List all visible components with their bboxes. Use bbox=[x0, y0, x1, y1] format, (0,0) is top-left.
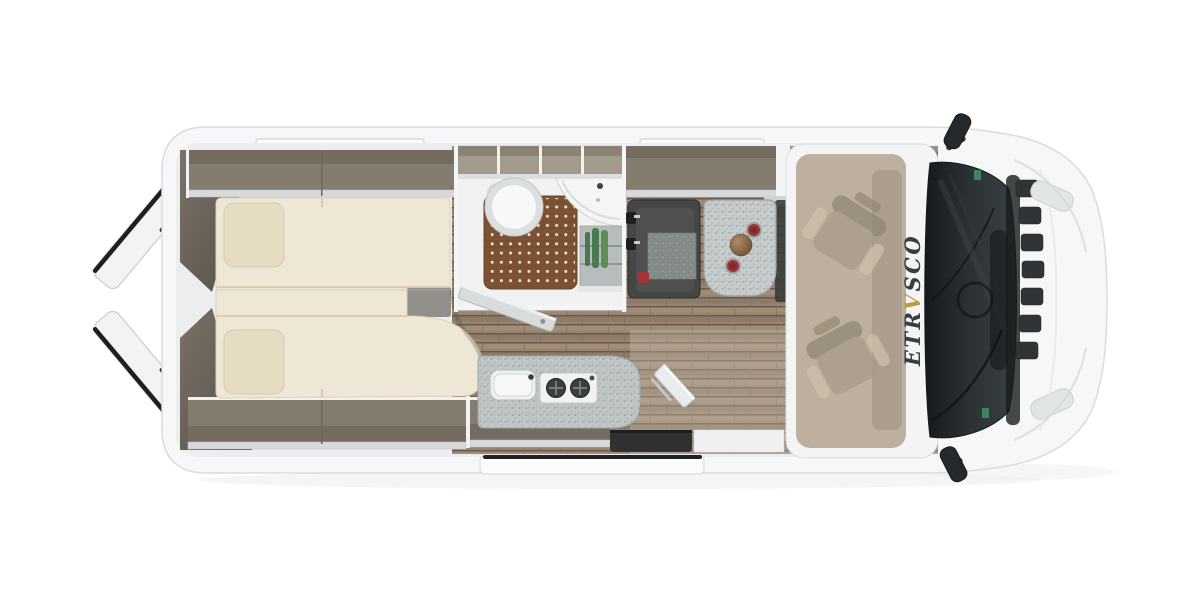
under-bed-shelf-shade bbox=[188, 426, 466, 444]
floorplan-svg: ETRVSCO bbox=[0, 0, 1200, 600]
toilet bbox=[485, 178, 543, 236]
entry-sill bbox=[694, 430, 784, 452]
shelf-front-lip bbox=[470, 440, 610, 447]
grille-slat bbox=[1021, 234, 1043, 251]
bed-recess-shadow bbox=[407, 286, 451, 317]
faucet bbox=[597, 183, 603, 189]
bathroom bbox=[454, 144, 626, 332]
twin-beds bbox=[216, 198, 484, 398]
bathroom-shelf bbox=[578, 226, 626, 297]
grille-slat bbox=[1019, 315, 1041, 332]
entry-edge bbox=[610, 430, 692, 433]
locker-divider bbox=[497, 146, 500, 176]
grille-slat bbox=[1022, 261, 1044, 278]
windshield-sticker bbox=[982, 408, 989, 418]
grille-slat bbox=[1016, 342, 1038, 359]
brand-logo-part: ETR bbox=[900, 310, 925, 367]
grille-slat bbox=[1021, 288, 1043, 305]
locker-divider bbox=[539, 146, 542, 176]
shelf-divider bbox=[466, 396, 470, 448]
grille-slat bbox=[1019, 207, 1041, 224]
bathroom-wall-left bbox=[454, 144, 458, 312]
buckle-pin bbox=[634, 241, 640, 244]
buckle-pin bbox=[634, 215, 640, 218]
bathroom-wall-right bbox=[622, 144, 626, 312]
cabinet-front-lip bbox=[626, 190, 778, 197]
shelf-front-lip bbox=[188, 190, 460, 197]
pillow-top-bed bbox=[224, 203, 284, 267]
kitchen-sink-basin bbox=[494, 374, 532, 396]
campervan-floorplan-scene: ETRVSCO bbox=[0, 0, 1200, 600]
shelf-seam bbox=[321, 150, 323, 196]
entry-floor-mat bbox=[610, 432, 692, 452]
brand-logo-part: SCO bbox=[900, 234, 925, 292]
shelf-seam bbox=[321, 400, 323, 444]
gas-hob bbox=[540, 373, 597, 403]
dinette-overhead-cabinet bbox=[626, 144, 790, 206]
toilet-bowl bbox=[492, 185, 536, 229]
red-cup-inner bbox=[730, 263, 736, 269]
brand-logo: ETRVSCO bbox=[900, 234, 925, 367]
cowl bbox=[1006, 175, 1020, 425]
shelf-tab bbox=[607, 292, 615, 297]
red-cup-inner bbox=[751, 227, 757, 233]
bronze-bowl bbox=[730, 234, 752, 256]
green-bottle bbox=[601, 230, 608, 268]
drain bbox=[596, 198, 600, 202]
windshield-sticker bbox=[974, 170, 981, 180]
locker-divider bbox=[581, 146, 584, 176]
kitchen-faucet bbox=[528, 374, 534, 380]
sliding-door-step bbox=[480, 455, 704, 474]
dashboard-shadow bbox=[990, 230, 1008, 370]
shelf-lip bbox=[578, 286, 626, 292]
step-edge bbox=[483, 455, 702, 459]
rear-overhead-shelf bbox=[186, 148, 460, 198]
dinette-table bbox=[704, 200, 776, 296]
shelf-shade bbox=[188, 150, 460, 164]
red-accent bbox=[638, 272, 649, 283]
bench-cushion-speckle bbox=[648, 233, 696, 279]
brand-logo-accent: V bbox=[900, 291, 925, 310]
hob-knob bbox=[590, 376, 595, 381]
cabinet-shade bbox=[626, 146, 778, 158]
shelf-front-lip bbox=[188, 442, 466, 449]
green-bottle bbox=[585, 232, 590, 266]
green-bottle bbox=[592, 228, 599, 268]
pillow-bottom-bed bbox=[224, 330, 284, 394]
shelf-end-wall bbox=[186, 148, 189, 198]
shelf-tab bbox=[587, 292, 595, 297]
